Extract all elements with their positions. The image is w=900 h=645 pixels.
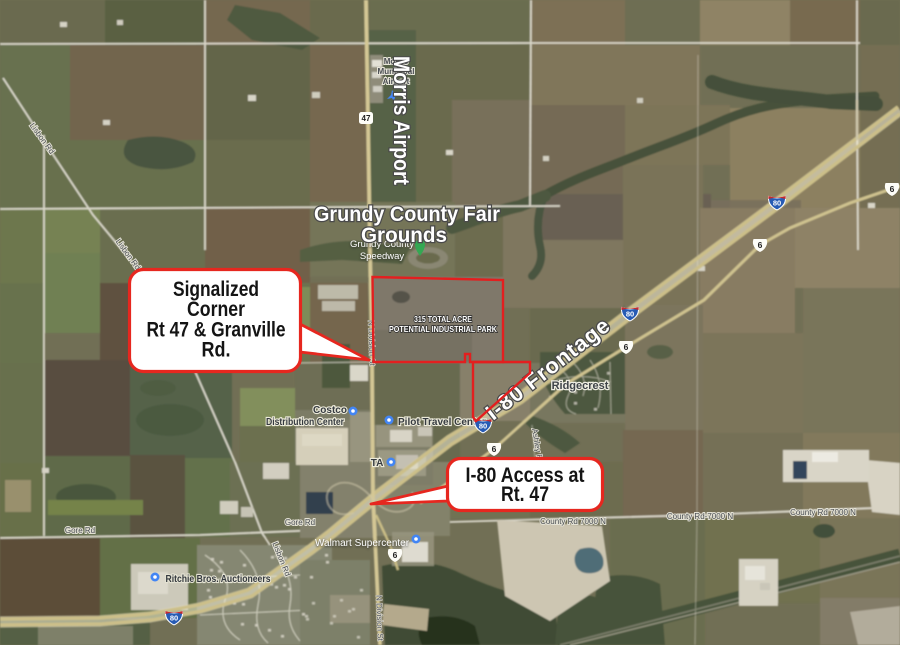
svg-text:Costco: Costco bbox=[313, 405, 347, 416]
svg-text:315 TOTAL ACRE: 315 TOTAL ACRE bbox=[414, 314, 472, 324]
svg-text:Grounds: Grounds bbox=[361, 224, 447, 247]
svg-text:Speedway: Speedway bbox=[360, 251, 405, 262]
svg-text:N Division St: N Division St bbox=[374, 595, 385, 642]
svg-text:POTENTIAL INDUSTRIAL PARK: POTENTIAL INDUSTRIAL PARK bbox=[389, 324, 498, 334]
svg-text:County Rd 7000 N: County Rd 7000 N bbox=[790, 508, 856, 517]
svg-text:County Rd 7000 N: County Rd 7000 N bbox=[540, 517, 606, 526]
svg-text:Walmart Supercenter: Walmart Supercenter bbox=[315, 538, 410, 549]
svg-text:Morris Airport: Morris Airport bbox=[389, 56, 414, 186]
svg-text:Ritchie Bros. Auctioneers: Ritchie Bros. Auctioneers bbox=[166, 574, 271, 585]
svg-text:Rd.: Rd. bbox=[202, 339, 231, 362]
svg-text:Gore Rd: Gore Rd bbox=[65, 526, 95, 535]
svg-text:Rt. 47: Rt. 47 bbox=[501, 483, 549, 506]
svg-text:Pilot Travel Center: Pilot Travel Center bbox=[398, 417, 486, 428]
svg-text:County Rd-7000 N: County Rd-7000 N bbox=[667, 512, 733, 521]
svg-text:Distribution Center: Distribution Center bbox=[266, 417, 344, 428]
svg-text:TA: TA bbox=[371, 458, 384, 469]
svg-text:Gore Rd: Gore Rd bbox=[285, 518, 315, 527]
svg-text:Grundy County Fair: Grundy County Fair bbox=[314, 203, 500, 226]
svg-text:Ridgecrest: Ridgecrest bbox=[552, 380, 609, 392]
